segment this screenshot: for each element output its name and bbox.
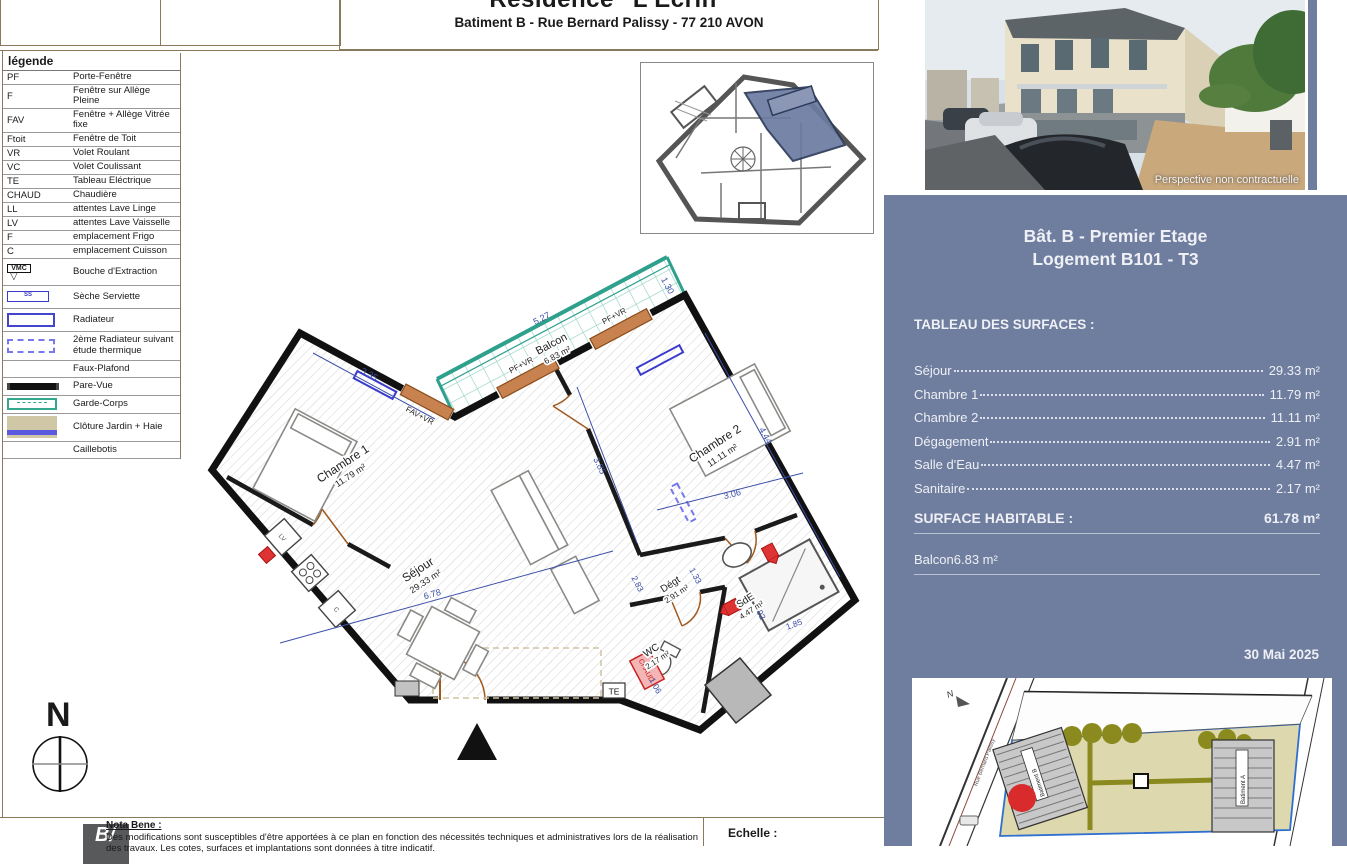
site-plan: Rue Bernard Palissy Batiment B Batiment … [912, 678, 1332, 846]
key-plan-drawing [641, 63, 873, 233]
north-compass: N [28, 702, 98, 802]
radiateur-icon [7, 313, 73, 327]
legend-item: CHAUDChaudière [3, 189, 180, 203]
legend-item-radiateur: Radiateur [3, 309, 180, 332]
surface-table: Séjour29.33 m² Chambre 111.79 m² Chambre… [914, 363, 1320, 504]
legend-item: FtoitFenêtre de Toit [3, 133, 180, 147]
surface-row: Chambre 111.79 m² [914, 387, 1320, 411]
surface-row: Salle d'Eau4.47 m² [914, 457, 1320, 481]
legend-item: PFPorte-Fenêtre [3, 71, 180, 85]
footer-vertical-divider [703, 817, 704, 846]
header-divider [0, 50, 878, 51]
vmc-extraction-icon: VMC▽ [7, 264, 73, 280]
footer-divider [0, 817, 884, 818]
compass-icon [28, 702, 98, 802]
surface-row: Sanitaire2.17 m² [914, 481, 1320, 505]
surface-row: Séjour29.33 m² [914, 363, 1320, 387]
floor-plan: PF+VR PF+VR FAV+VR [185, 255, 885, 770]
nota-bene: Nota Bene : Des modifications sont susce… [106, 820, 698, 854]
svg-text:Batiment A: Batiment A [1241, 775, 1247, 804]
garde-corps-icon [7, 398, 73, 410]
pare-vue-icon [7, 383, 73, 390]
legend-item-radiateur2: 2ème Radiateur suivant étude thermique [3, 332, 180, 361]
legend-item: LLattentes Lave Linge [3, 203, 180, 217]
scale-label: Echelle : [728, 826, 777, 840]
radiateur2-icon [7, 339, 73, 353]
surface-total-row: SURFACE HABITABLE :61.78 m² [914, 510, 1320, 534]
page-title: Résidence "L'Ecrin" [340, 0, 878, 14]
legend-item: Cemplacement Cuisson [3, 245, 180, 259]
seche-serviette-icon: SS [7, 291, 73, 302]
location-marker [1008, 784, 1036, 812]
balcony-row: Balcon6.83 m² [914, 552, 1320, 575]
site-plan-drawing: Rue Bernard Palissy Batiment B Batiment … [912, 678, 1332, 846]
legend-item-caillebotis: Caillebotis [3, 442, 180, 459]
cloture-icon [7, 416, 73, 438]
info-panel: Bât. B - Premier Etage Logement B101 - T… [884, 195, 1347, 846]
legend-title: légende [3, 53, 180, 71]
legend-item: TETableau Eléctrique [3, 175, 180, 189]
legend-item: VRVolet Roulant [3, 147, 180, 161]
header-logo-box [0, 0, 162, 46]
site-building-a: Batiment A [1212, 740, 1274, 832]
legend-item-vmc: VMC▽ Bouche d'Extraction [3, 259, 180, 286]
plan-sheet: { "header": { "title": "Résidence \"L'Ec… [0, 0, 1347, 846]
page-subtitle: Batiment B - Rue Bernard Palissy - 77 21… [340, 15, 878, 30]
photo-caption: Perspective non contractuelle [1155, 174, 1299, 186]
nota-bene-title: Nota Bene : [106, 820, 162, 831]
legend-item-gardecorps: Garde-Corps [3, 396, 180, 414]
legend-item-cloture: Clôture Jardin + Haie [3, 414, 180, 442]
surface-table-title: TABLEAU DES SURFACES : [914, 317, 1095, 332]
photo-illustration [925, 0, 1305, 190]
entrance-marker [457, 723, 497, 760]
legend-item: FAVFenêtre + Allège Vitrée fixe [3, 109, 180, 133]
legend-item-faux-plafond: Faux-Plafond [3, 361, 180, 378]
legend-item: Femplacement Frigo [3, 231, 180, 245]
plan-date: 30 Mai 2025 [1244, 647, 1319, 662]
legend-item-parevue: Pare-Vue [3, 378, 180, 396]
perspective-photo: Perspective non contractuelle [925, 0, 1305, 190]
key-plan [640, 62, 874, 234]
legend-item: LVattentes Lave Vaisselle [3, 217, 180, 231]
header-empty-box [160, 0, 341, 46]
surface-row: Dégagement2.91 m² [914, 434, 1320, 458]
legend-panel: légende PFPorte-Fenêtre FFenêtre sur All… [3, 53, 181, 459]
apartment-title: Bât. B - Premier Etage Logement B101 - T… [884, 195, 1347, 271]
svg-text:TE: TE [609, 687, 620, 697]
legend-item: VCVolet Coulissant [3, 161, 180, 175]
title-block: Résidence "L'Ecrin" Batiment B - Rue Ber… [339, 0, 879, 50]
surface-row: Chambre 211.11 m² [914, 410, 1320, 434]
nota-bene-text: Des modifications sont susceptibles d'êt… [106, 832, 642, 843]
legend-item: FFenêtre sur Allège Pleine [3, 85, 180, 109]
te-box: TE [603, 683, 625, 698]
blue-edge-strip [1308, 0, 1317, 190]
legend-item-ss: SS Sèche Serviette [3, 286, 180, 309]
